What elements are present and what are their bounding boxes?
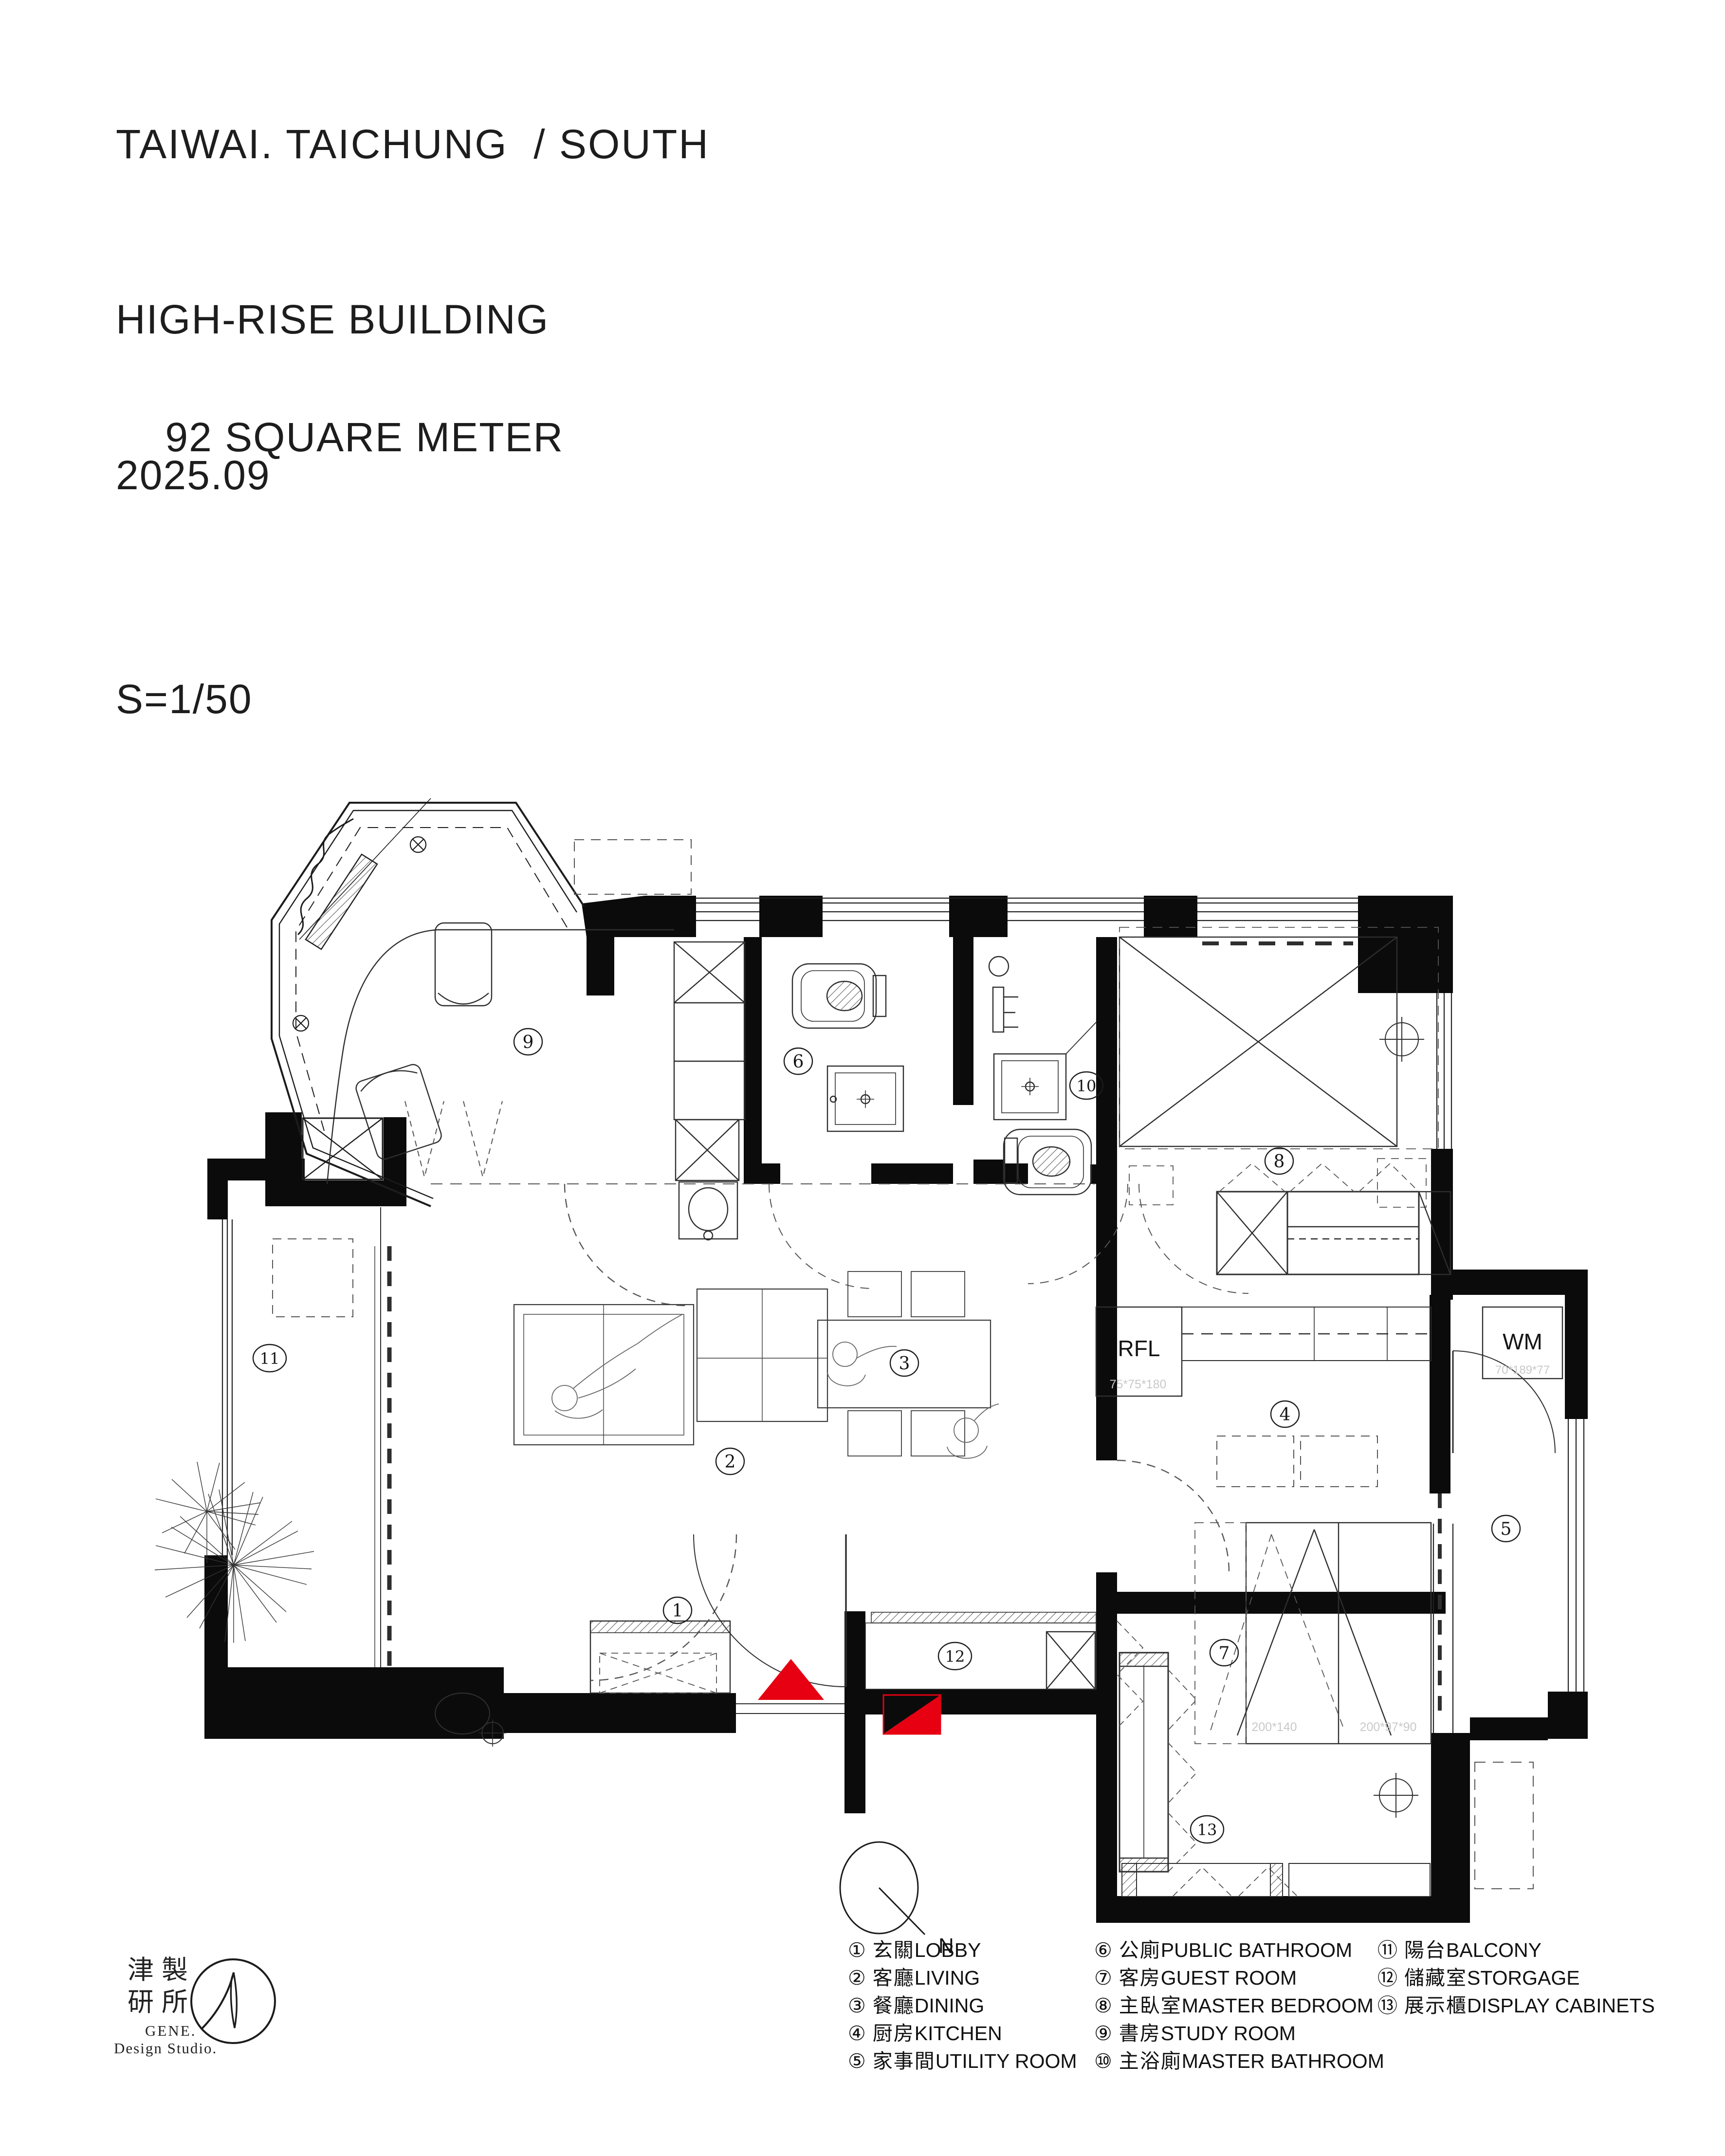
studio-logo-mark — [187, 1955, 279, 2047]
studio-logo: 津製研所 GENE. Design Studio. — [113, 1951, 317, 2048]
coffee-table — [697, 1289, 827, 1421]
dashed-box — [1129, 1166, 1173, 1205]
balcony — [155, 1207, 389, 1675]
svg-text:5: 5 — [1501, 1519, 1512, 1539]
threshold — [736, 1704, 844, 1714]
room-label-13: 13 — [1191, 1816, 1224, 1843]
guest-bed — [1195, 1523, 1431, 1744]
drawing-sheet: TAIWAI. TAICHUNG / SOUTH HIGH-RISE BUILD… — [0, 0, 1725, 2156]
shoe-cabinet — [590, 1621, 730, 1693]
floor-plan: N RFL 75*75*180 WM 70*189*77 200*140 200… — [0, 0, 1725, 2156]
legend-column-2: ⑥公廁PUBLIC BATHROOM ⑦客房GUEST ROOM ⑧主臥室MAS… — [1094, 1936, 1384, 2075]
room-label-7: 7 — [1210, 1640, 1238, 1666]
bedroom-door-swing — [1139, 1184, 1248, 1293]
room-label-2: 2 — [716, 1448, 744, 1474]
svg-text:1: 1 — [672, 1601, 683, 1621]
plant — [155, 1462, 314, 1643]
guest-utility — [1117, 1493, 1533, 1897]
svg-text:9: 9 — [523, 1032, 534, 1052]
curved-desk — [327, 930, 674, 1184]
legend-item-storage: ⑫儲藏室STORGAGE — [1377, 1964, 1655, 1992]
room-label-9: 9 — [514, 1029, 542, 1055]
legend-item-utility: ⑤家事間UTILITY ROOM — [848, 2047, 1077, 2075]
appliance-labels: RFL 75*75*180 WM 70*189*77 200*140 200*9… — [1110, 1329, 1550, 1734]
desk-stool — [435, 923, 492, 1006]
kitchen-door-swing — [1117, 1460, 1229, 1572]
wardrobe-door-swings — [1219, 1163, 1419, 1192]
hallway — [431, 1184, 1248, 1293]
sofa — [514, 1305, 694, 1445]
svg-text:11: 11 — [260, 1349, 280, 1368]
legend-item-master-bathroom: ⑩主浴廁MASTER BATHROOM — [1094, 2047, 1384, 2075]
column-box — [676, 1120, 739, 1180]
guest-bed-dim-1: 200*140 — [1251, 1720, 1297, 1734]
stool-dashed-2 — [1301, 1436, 1377, 1487]
svg-text:12: 12 — [945, 1647, 965, 1666]
bath6-door-swing — [769, 1184, 874, 1289]
master-bathroom — [989, 957, 1096, 1195]
room-label-3: 3 — [890, 1350, 918, 1376]
basin-cabinet — [679, 1182, 737, 1240]
display-cabinet — [1119, 1653, 1168, 1872]
wardrobe-row — [1217, 1192, 1450, 1274]
svg-text:3: 3 — [899, 1354, 910, 1374]
shower-screen — [1066, 1022, 1096, 1054]
legend-item-public-bathroom: ⑥公廁PUBLIC BATHROOM — [1094, 1936, 1384, 1964]
legend-item-master-bedroom: ⑧主臥室MASTER BEDROOM — [1094, 1992, 1384, 2020]
legend-item-display-cabinets: ⑬展示櫃DISPLAY CABINETS — [1377, 1992, 1655, 2020]
room-label-8: 8 — [1265, 1148, 1293, 1174]
public-bathroom — [792, 964, 903, 1131]
entry-flag — [883, 1695, 940, 1734]
ac-ledge-dashed — [1475, 1762, 1533, 1889]
sink — [994, 1054, 1066, 1120]
guest-bed-dim-2: 200*97*90 — [1360, 1720, 1417, 1734]
legend-item-living: ②客廳LIVING — [848, 1964, 1077, 1992]
toilet — [792, 964, 886, 1028]
room-label-6: 6 — [784, 1048, 812, 1074]
svg-text:7: 7 — [1219, 1643, 1230, 1663]
hanging-clothes — [405, 1101, 502, 1177]
toilet — [1004, 1129, 1091, 1195]
column-box — [1046, 1632, 1095, 1689]
legend-item-kitchen: ④厨房KITCHEN — [848, 2020, 1077, 2047]
stool-dashed-1 — [1217, 1436, 1294, 1487]
study-door-swing — [565, 1184, 686, 1306]
svg-text:6: 6 — [793, 1052, 804, 1072]
room-label-12: 12 — [938, 1642, 972, 1670]
person-sitting-left — [827, 1342, 897, 1386]
legend-item-guest-room: ⑦客房GUEST ROOM — [1094, 1964, 1384, 1992]
room-label-5: 5 — [1492, 1515, 1520, 1542]
legend-item-balcony: ⑪陽台BALCONY — [1377, 1936, 1655, 1964]
room-label-11: 11 — [253, 1345, 286, 1372]
wm-label: WM — [1503, 1329, 1542, 1354]
storage-room — [865, 1612, 1096, 1689]
study-wardrobe — [674, 942, 745, 1120]
rfl-dim: 75*75*180 — [1110, 1378, 1167, 1391]
walls — [204, 896, 1588, 1923]
living-dining — [514, 1271, 999, 1458]
svg-text:10: 10 — [1077, 1077, 1097, 1095]
ac-unit-dashed — [273, 1239, 353, 1317]
ac-platform-dashed — [574, 840, 691, 894]
person-sitting-bottom — [947, 1404, 999, 1458]
sink — [827, 1066, 903, 1131]
rfl-label: RFL — [1118, 1336, 1160, 1361]
ceiling-light — [1379, 1017, 1424, 1062]
ceiling-light — [1374, 1773, 1418, 1818]
legend-column-3: ⑪陽台BALCONY ⑫儲藏室STORGAGE ⑬展示櫃DISPLAY CABI… — [1377, 1936, 1655, 2020]
legend-item-lobby: ①玄關LOBBY — [848, 1936, 1077, 1964]
svg-text:13: 13 — [1197, 1821, 1217, 1839]
entry-door — [694, 1534, 846, 1687]
svg-text:8: 8 — [1274, 1152, 1285, 1172]
study-room — [303, 923, 745, 1306]
room-label-1: 1 — [663, 1597, 692, 1623]
room-label-4: 4 — [1271, 1401, 1299, 1427]
legend-item-study-room: ⑨書房STUDY ROOM — [1094, 2020, 1384, 2047]
person-lounging — [552, 1314, 682, 1419]
counter — [1182, 1307, 1431, 1361]
legend-column-1: ①玄關LOBBY ②客廳LIVING ③餐廳DINING ④厨房KITCHEN … — [848, 1936, 1077, 2075]
svg-text:4: 4 — [1280, 1405, 1291, 1425]
shower-set — [989, 957, 1018, 1032]
studio-logo-cjk: 津製研所 — [128, 1954, 196, 2018]
svg-text:2: 2 — [725, 1452, 736, 1472]
legend-item-dining: ③餐廳DINING — [848, 1992, 1077, 2020]
wm-dim: 70*189*77 — [1495, 1364, 1550, 1377]
window-sill-hatched — [306, 854, 377, 949]
